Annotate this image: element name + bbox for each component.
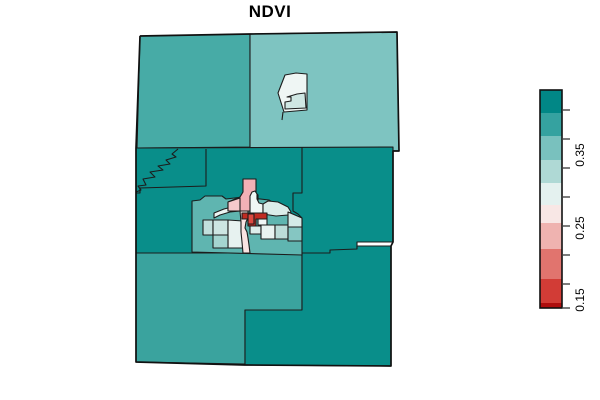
legend-band-3 [540,160,562,183]
legend-band-4 [540,183,562,205]
legend-band-5 [540,205,562,223]
legend-label-0.15: 0.15 [573,288,587,312]
legend-band-8 [540,279,562,303]
legend-label-0.25: 0.25 [573,216,587,240]
tract-red-bright [248,214,254,224]
tract-pale-below-red [250,226,261,234]
ndvi-choropleth-plot: 0.350.250.15 [0,0,600,400]
tract-pale-left [203,220,213,235]
tract-square-b1 [213,235,228,248]
legend-band-0 [540,90,562,113]
tract-square-a1 [213,220,228,235]
legend-label-0.35: 0.35 [573,143,587,167]
tract-white-square [261,225,275,239]
county-top-left [137,34,250,148]
legend-band-2 [540,136,562,160]
figure: NDVI 0.350.250.15 [0,0,600,400]
legend-band-7 [540,249,562,279]
tract-teal-east [288,227,302,241]
legend-band-6 [540,223,562,249]
tract-teal-square [275,225,288,239]
tract-white-east [258,219,267,225]
legend-band-1 [540,113,562,136]
county-top-right [250,32,399,151]
